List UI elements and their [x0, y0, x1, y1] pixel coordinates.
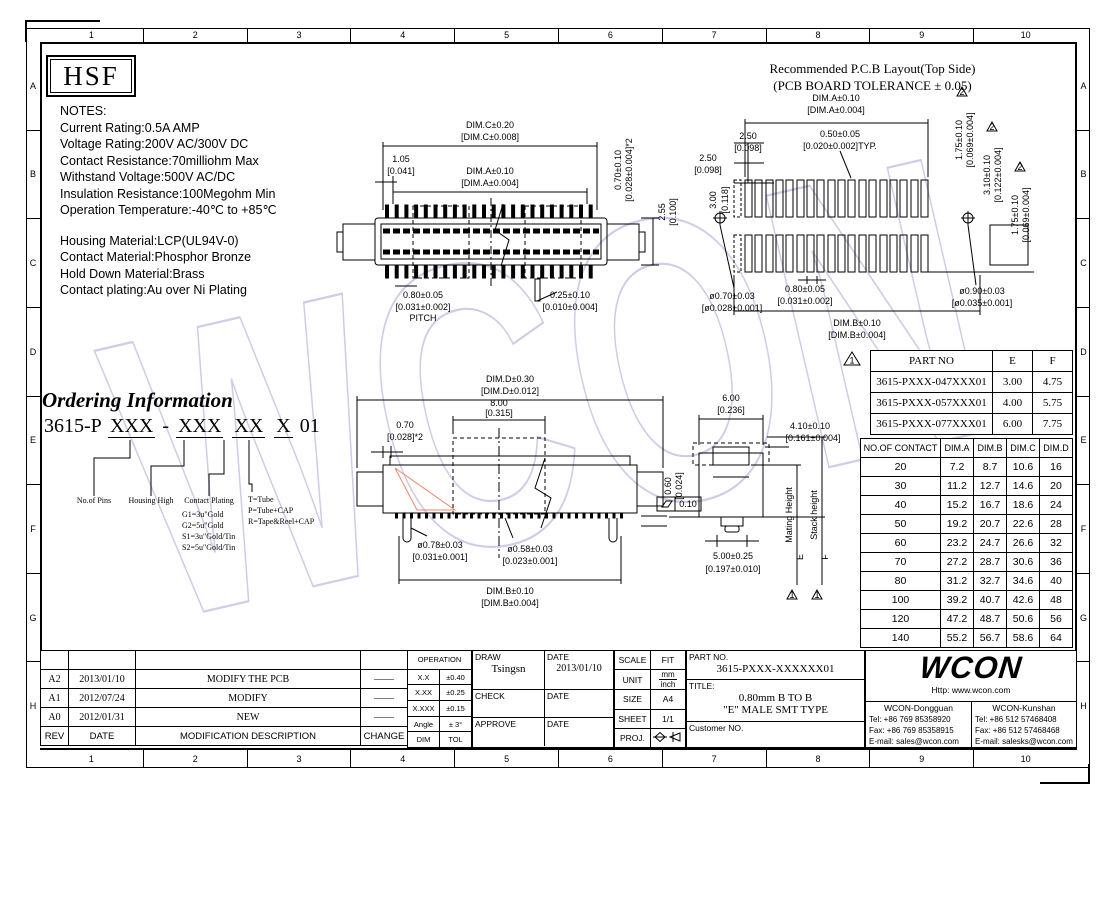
cell: 4.75	[1033, 372, 1073, 393]
cell: 5.75	[1033, 393, 1073, 414]
scale-label: SCALE	[615, 651, 651, 670]
cell: MODIFICATION DESCRIPTION	[136, 727, 361, 746]
dim-label: [0.161±0.004]	[786, 433, 841, 443]
office-tel: Tel: +86 769 85358920	[869, 714, 968, 725]
cell: 7.75	[1033, 414, 1073, 435]
grid-label: D	[1077, 308, 1090, 397]
dim-label: 8.00	[490, 398, 508, 408]
dim-label: 3.10±0.10	[982, 155, 992, 195]
plating-option: S1=3u"Gold/Tin	[182, 531, 235, 542]
office-tel: Tel: +86 512 57468408	[975, 714, 1073, 725]
table-row: 3615-PXXX-047XXX013.004.75	[871, 372, 1073, 393]
cell: 2012/01/31	[69, 708, 136, 727]
dim-label: [0.100]	[668, 198, 678, 226]
dim-label: DIM.B±0.10	[486, 586, 533, 596]
tol-footer: TOL	[440, 732, 472, 748]
dim-label: DIM.C±0.20	[466, 120, 514, 130]
drawing-title-line1: 0.80mm B TO B	[687, 692, 864, 704]
table-header-row: NO.OF CONTACTDIM.ADIM.BDIM.CDIM.D	[861, 439, 1073, 458]
ordering-heading: Ordering Information	[42, 388, 362, 413]
cell: 30.6	[1007, 553, 1040, 572]
dim-label: ø0.90±0.03	[959, 286, 1004, 296]
grid-label: 3	[248, 750, 352, 768]
grid-label: 5	[455, 28, 559, 42]
grid-label: H	[1077, 662, 1090, 750]
grid-label: G	[1077, 574, 1090, 663]
part-height-table: PART NOEF3615-PXXX-047XXX013.004.753615-…	[870, 350, 1073, 435]
cell: 50	[861, 515, 941, 534]
cell: REV	[41, 727, 69, 746]
grid-columns-bottom: 12345678910	[40, 750, 1077, 768]
cell: 15.2	[941, 496, 974, 515]
cell	[41, 651, 69, 670]
table-row: A22013/01/10MODIFY THE PCB——	[41, 670, 408, 689]
dim-label: 0.80±0.05	[785, 284, 825, 294]
table-row: 3011.212.714.620	[861, 477, 1073, 496]
customer-label: Customer NO.	[687, 722, 864, 747]
third-angle-projection-icon	[653, 731, 683, 743]
dim-label: 2.50	[699, 153, 717, 163]
dim-label: ø0.70±0.03	[709, 291, 754, 301]
dim-label: [0.031±0.002]	[396, 302, 451, 312]
grid-label: A	[26, 42, 40, 131]
note-line: Hold Down Material:Brass	[60, 266, 340, 283]
grid-label: B	[26, 131, 40, 220]
cell: 58.6	[1007, 629, 1040, 648]
dim-label: 3.00	[708, 191, 718, 209]
cell: 56	[1040, 610, 1073, 629]
dim-label: [ø0.028±0.001]	[702, 303, 762, 313]
connector-front-view: DIM.D±0.30 [DIM.D±0.012] 8.00 [0.315] 0.…	[335, 368, 685, 608]
grid-label: 7	[663, 28, 767, 42]
sheet-value: 1/1	[651, 709, 686, 728]
cell: 3615-PXXX-057XXX01	[871, 393, 993, 414]
cell: 39.2	[941, 591, 974, 610]
pcb-title-line1: Recommended P.C.B Layout(Top Side)	[700, 60, 1045, 77]
column-header: NO.OF CONTACT	[861, 439, 941, 458]
table-row: 3615-PXXX-057XXX014.005.75	[871, 393, 1073, 414]
cell: 11.2	[941, 477, 974, 496]
office-email: E-mail: salesks@wcon.com	[975, 736, 1073, 747]
tol-label: X.X	[408, 669, 440, 685]
plating-option: G2=5u"Gold	[182, 520, 235, 531]
unit-label: UNIT	[615, 670, 651, 690]
grid-label: 9	[870, 750, 974, 768]
table-row: 5019.220.722.628	[861, 515, 1073, 534]
stack-ref-letter: F	[820, 554, 830, 560]
cell: 3615-PXXX-077XXX01	[871, 414, 993, 435]
tolerance-table: OPERATION X.X±0.40 X.XX±0.25 X.XXX±0.15 …	[407, 650, 472, 748]
cell: 40	[1040, 572, 1073, 591]
grid-columns-top: 12345678910	[40, 28, 1077, 42]
cell: 30	[861, 477, 941, 496]
grid-label: H	[26, 662, 40, 750]
engineering-drawing-sheet: { "colors": { "line": "#000000", "waterm…	[0, 0, 1114, 790]
dim-label: [0.031±0.002]	[778, 296, 833, 306]
grid-label: 2	[144, 28, 248, 42]
dim-label: [0.098]	[734, 143, 762, 153]
date-label: DATE	[545, 690, 613, 717]
cell: 28	[1040, 515, 1073, 534]
dim-label: [0.122±0.004]	[993, 148, 1003, 203]
tol-value: ±0.40	[440, 669, 472, 685]
signature-block: DRAW Tsingsn DATE 2013/01/10 CHECK DATE …	[472, 650, 614, 748]
dim-label: [0.197±0.010]	[706, 564, 761, 574]
grid-label: 4	[351, 750, 455, 768]
cell: 60	[861, 534, 941, 553]
dim-label: 0.70	[396, 420, 414, 430]
tol-value: ±0.25	[440, 685, 472, 701]
column-header: DIM.D	[1040, 439, 1073, 458]
cell: NEW	[136, 708, 361, 727]
cell: 32	[1040, 534, 1073, 553]
revision-flag-icon: 1 1	[787, 590, 822, 600]
cell: DATE	[69, 727, 136, 746]
partno-value: 3615-PXXX-XXXXXX01	[687, 663, 864, 675]
top-view-labels: DIM.C±0.20 [DIM.C±0.008] 1.05 [0.041] DI…	[387, 120, 678, 323]
dim-label: [0.020±0.002]TYP.	[803, 141, 877, 151]
revision-flag-icon: 1	[843, 351, 861, 367]
dim-label: [DIM.C±0.008]	[461, 132, 519, 142]
cell: 42.6	[1007, 591, 1040, 610]
grid-label: C	[1077, 219, 1090, 308]
svg-text:1: 1	[814, 590, 819, 600]
dim-label: [0.010±0.004]	[543, 302, 598, 312]
note-line: Contact Material:Phosphor Bronze	[60, 249, 340, 266]
dim-label: PITCH	[410, 313, 437, 323]
cell: 19.2	[941, 515, 974, 534]
grid-label: D	[26, 308, 40, 397]
column-header: E	[993, 351, 1033, 372]
cell: 47.2	[941, 610, 974, 629]
cell: 20	[861, 458, 941, 477]
date-label: DATE	[545, 718, 613, 746]
stack-height-label: Stack height	[809, 490, 819, 540]
dim-label: [0.118]	[720, 187, 730, 214]
cell: 2012/07/24	[69, 689, 136, 708]
cell: 18.6	[1007, 496, 1040, 515]
office-name: WCON-Kunshan	[975, 703, 1073, 714]
unit-inch: inch	[651, 680, 685, 689]
cell: 48	[1040, 591, 1073, 610]
dim-label: [DIM.B±0.004]	[481, 598, 538, 608]
column-header: DIM.B	[974, 439, 1007, 458]
tol-value: ± 3°	[440, 716, 472, 732]
grid-label: 1	[40, 750, 144, 768]
office-email: E-mail: sales@wcon.com	[869, 736, 968, 747]
cell: 48.7	[974, 610, 1007, 629]
dim-label: 0.25±0.10	[550, 290, 590, 300]
dim-label: [0.031±0.001]	[413, 552, 468, 562]
dim-label: [0.028±0.004]*2	[624, 138, 634, 202]
table-header-row: PART NOEF	[871, 351, 1073, 372]
cell: ——	[361, 689, 408, 708]
cell: 40.7	[974, 591, 1007, 610]
dim-label: [0.236]	[717, 405, 745, 415]
ordering-tree-lines	[42, 440, 352, 500]
notes-block: NOTES: Current Rating:0.5A AMPVoltage Ra…	[60, 103, 340, 299]
cell: 22.6	[1007, 515, 1040, 534]
dim-label: ø0.58±0.03	[507, 544, 552, 554]
office-dongguan: WCON-Dongguan Tel: +86 769 85358920 Fax:…	[866, 702, 972, 747]
grid-label: 10	[974, 750, 1077, 768]
tol-label: X.XX	[408, 685, 440, 701]
draw-name: Tsingsn	[473, 663, 544, 675]
check-label: CHECK	[473, 690, 545, 717]
part-number-formula: 3615-P XXX - XXX XX X 01	[44, 415, 320, 438]
scale-value: FIT	[651, 651, 686, 670]
connector-top-view: DIM.C±0.20 [DIM.C±0.008] 1.05 [0.041] DI…	[335, 100, 685, 322]
note-line: Voltage Rating:200V AC/300V DC	[60, 136, 340, 153]
unit-value: mm inch	[651, 670, 686, 690]
table-row: 207.28.710.616	[861, 458, 1073, 477]
cell: 2013/01/10	[69, 670, 136, 689]
drawing-title-line2: "E" MALE SMT TYPE	[687, 704, 864, 716]
grid-label: 9	[870, 28, 974, 42]
plating-option: S2=5u"Gold/Tin	[182, 542, 235, 553]
dim-label: 6.00	[722, 393, 740, 403]
cell: 14.6	[1007, 477, 1040, 496]
unit-mm: mm	[659, 670, 677, 680]
office-kunshan: WCON-Kunshan Tel: +86 512 57468408 Fax: …	[972, 702, 1076, 747]
grid-label: G	[26, 574, 40, 663]
svg-text:1: 1	[789, 590, 794, 600]
cell: MODIFY	[136, 689, 361, 708]
pn-prefix: 3615-P	[44, 415, 101, 437]
packing-option: P=Tube+CAP	[248, 505, 314, 516]
note-line: Insulation Resistance:100Megohm Min	[60, 186, 340, 203]
dim-label: [0.028]*2	[387, 432, 423, 442]
side-view-labels: 6.00 [0.236] 4.10±0.10 [0.161±0.004] 5.0…	[679, 393, 840, 574]
grid-label: 2	[144, 750, 248, 768]
connector-side-view: 6.00 [0.236] 4.10±0.10 [0.161±0.004] 5.0…	[655, 385, 865, 635]
dim-label: [DIM.A±0.004]	[461, 178, 518, 188]
table-row: 7027.228.730.636	[861, 553, 1073, 572]
title-block: A22013/01/10MODIFY THE PCB——A12012/07/24…	[40, 650, 1077, 748]
cell	[361, 651, 408, 670]
tol-label: Angle	[408, 716, 440, 732]
column-header: F	[1033, 351, 1073, 372]
cell: 12.7	[974, 477, 1007, 496]
table-row: 10039.240.742.648	[861, 591, 1073, 610]
dim-label: DIM.A±0.10	[466, 166, 513, 176]
projection-symbol	[651, 728, 686, 747]
grid-label: 7	[663, 750, 767, 768]
grid-label: C	[26, 219, 40, 308]
dim-label: 0.50±0.05	[820, 129, 860, 139]
dim-label: 2.55	[657, 203, 667, 221]
pn-housing-code: XXX	[176, 415, 223, 438]
grid-label: F	[26, 485, 40, 574]
pn-packing-code: X	[274, 415, 292, 438]
dim-label: [DIM.D±0.012]	[481, 386, 539, 396]
cell: 26.6	[1007, 534, 1040, 553]
cell: A0	[41, 708, 69, 727]
table-row: REVDATEMODIFICATION DESCRIPTIONCHANGE	[41, 727, 408, 746]
cell	[136, 651, 361, 670]
grid-label: 8	[767, 750, 871, 768]
office-fax: Fax: +86 769 85358915	[869, 725, 968, 736]
dim-label: 2.50	[739, 131, 757, 141]
title-label: TITLE:	[687, 680, 864, 692]
grid-label: E	[1077, 397, 1090, 486]
dim-label: [DIM.A±0.004]	[807, 105, 864, 115]
packing-option: R=Tape&Reel+CAP	[248, 516, 314, 527]
dim-label: [0.041]	[387, 166, 415, 176]
mating-ref-letter: E	[795, 554, 805, 560]
grid-label: B	[1077, 131, 1090, 220]
table-row: 4015.216.718.624	[861, 496, 1073, 515]
dim-label: [0.315]	[485, 408, 513, 418]
part-title-block: PART NO. 3615-PXXX-XXXXXX01 TITLE: 0.80m…	[686, 650, 865, 748]
grid-label: 10	[974, 28, 1077, 42]
column-header: PART NO	[871, 351, 993, 372]
cell: 7.2	[941, 458, 974, 477]
table-row: A12012/07/24MODIFY——	[41, 689, 408, 708]
cell: 8.7	[974, 458, 1007, 477]
notes-title: NOTES:	[60, 103, 340, 120]
cell: 3615-PXXX-047XXX01	[871, 372, 993, 393]
pn-plating-code: XX	[232, 415, 265, 438]
cell: 20.7	[974, 515, 1007, 534]
front-view-labels: DIM.D±0.30 [DIM.D±0.012] 8.00 [0.315] 0.…	[387, 374, 684, 608]
cell: 120	[861, 610, 941, 629]
cell	[69, 651, 136, 670]
cell: 24	[1040, 496, 1073, 515]
cell: 16	[1040, 458, 1073, 477]
grid-label: 8	[767, 28, 871, 42]
ordering-information: Ordering Information 3615-P XXX - XXX XX…	[42, 388, 362, 568]
note-line: Contact Resistance:70milliohm Max	[60, 153, 340, 170]
dim-label: [DIM.B±0.004]	[828, 330, 885, 340]
cell: A2	[41, 670, 69, 689]
dim-label: 1.05	[392, 154, 410, 164]
cell: ——	[361, 708, 408, 727]
svg-text:2: 2	[959, 87, 964, 97]
date-label: DATE	[545, 651, 613, 663]
company-block: WCON Http: www.wcon.com WCON-Dongguan Te…	[865, 650, 1077, 748]
mating-height-label: Mating Height	[784, 487, 794, 543]
partno-label: PART NO.	[687, 651, 864, 663]
pn-suffix: 01	[300, 415, 320, 437]
cell: 56.7	[974, 629, 1007, 648]
pn-separator: -	[162, 415, 169, 437]
dim-label: 4.10±0.10	[790, 421, 830, 431]
dim-label: ø0.78±0.03	[417, 540, 462, 550]
table-row: 8031.232.734.640	[861, 572, 1073, 591]
notes-materials: Housing Material:LCP(UL94V-0)Contact Mat…	[60, 233, 340, 299]
cell: 10.6	[1007, 458, 1040, 477]
cell: 27.2	[941, 553, 974, 572]
table-row: 6023.224.726.632	[861, 534, 1073, 553]
tol-footer: DIM	[408, 732, 440, 748]
office-fax: Fax: +86 512 57468468	[975, 725, 1073, 736]
dim-label: [0.098]	[694, 165, 722, 175]
cell: 20	[1040, 477, 1073, 496]
dim-label: 1.75±0.10	[954, 120, 964, 160]
svg-text:2: 2	[1017, 162, 1022, 172]
office-name: WCON-Dongguan	[869, 703, 968, 714]
cell: 23.2	[941, 534, 974, 553]
cell: MODIFY THE PCB	[136, 670, 361, 689]
dim-label: 0.70±0.10	[613, 150, 623, 190]
cell: 24.7	[974, 534, 1007, 553]
hsf-logo-text: HSF	[50, 59, 132, 93]
grid-label: A	[1077, 42, 1090, 131]
column-header: DIM.C	[1007, 439, 1040, 458]
cell: ——	[361, 670, 408, 689]
scale-block: SCALE FIT UNIT mm inch SIZE A4 SHEET 1/1…	[614, 650, 686, 748]
table-row: 12047.248.750.656	[861, 610, 1073, 629]
cell: 16.7	[974, 496, 1007, 515]
dim-label: DIM.A±0.10	[812, 93, 859, 103]
revision-table: A22013/01/10MODIFY THE PCB——A12012/07/24…	[40, 650, 408, 746]
grid-label: 1	[40, 28, 144, 42]
grid-label: 6	[559, 750, 663, 768]
grid-label: F	[1077, 485, 1090, 574]
note-line: Operation Temperature:-40℃ to +85℃	[60, 202, 340, 219]
cell: 40	[861, 496, 941, 515]
dim-label: DIM.B±0.10	[833, 318, 880, 328]
cell: A1	[41, 689, 69, 708]
cell: 32.7	[974, 572, 1007, 591]
pcb-layout-view: DIM.A±0.10 [DIM.A±0.004] 0.50±0.05 [0.02…	[690, 85, 1040, 347]
cell: 140	[861, 629, 941, 648]
dim-label: 5.00±0.25	[713, 551, 753, 561]
cell: 28.7	[974, 553, 1007, 572]
grid-label: 6	[559, 28, 663, 42]
dim-label: 1.75±0.10	[1010, 195, 1020, 235]
table-row: A02012/01/31NEW——	[41, 708, 408, 727]
grid-label: 3	[248, 28, 352, 42]
dim-label: [0.069±0.004]	[1021, 188, 1031, 243]
note-line: Withstand Voltage:500V AC/DC	[60, 169, 340, 186]
contact-dimension-table: NO.OF CONTACTDIM.ADIM.BDIM.CDIM.D207.28.…	[860, 438, 1073, 648]
flatness-value: 0.10	[679, 499, 697, 509]
hsf-logo: HSF	[46, 55, 136, 97]
cell: 80	[861, 572, 941, 591]
dim-label: [ø0.035±0.001]	[952, 298, 1012, 308]
grid-rows-left: ABCDEFGH	[26, 42, 40, 750]
dim-label: 0.80±0.05	[403, 290, 443, 300]
svg-text:1: 1	[849, 356, 854, 366]
column-header: DIM.A	[941, 439, 974, 458]
cell: 50.6	[1007, 610, 1040, 629]
website: Http: www.wcon.com	[866, 685, 1076, 695]
draw-date: 2013/01/10	[545, 663, 613, 674]
plating-options: G1=3u"GoldG2=5u"GoldS1=3u"Gold/TinS2=5u"…	[182, 509, 235, 553]
cell: 3.00	[993, 372, 1033, 393]
cell: 4.00	[993, 393, 1033, 414]
dim-label: DIM.D±0.30	[486, 374, 534, 384]
grid-label: E	[26, 397, 40, 486]
tolerance-title: OPERATION	[408, 651, 472, 670]
dim-label: [0.069±0.004]	[965, 113, 975, 168]
tol-label: X.XXX	[408, 701, 440, 717]
grid-label: 4	[351, 28, 455, 42]
cell: 64	[1040, 629, 1073, 648]
plating-option: G1=3u"Gold	[182, 509, 235, 520]
table-row	[41, 651, 408, 670]
size-value: A4	[651, 690, 686, 709]
table-row: 14055.256.758.664	[861, 629, 1073, 648]
grid-rows-right: ABCDEFGH	[1077, 42, 1090, 750]
cell: 31.2	[941, 572, 974, 591]
cell: 70	[861, 553, 941, 572]
cell: CHANGE	[361, 727, 408, 746]
size-label: SIZE	[615, 690, 651, 709]
note-line: Current Rating:0.5A AMP	[60, 120, 340, 137]
